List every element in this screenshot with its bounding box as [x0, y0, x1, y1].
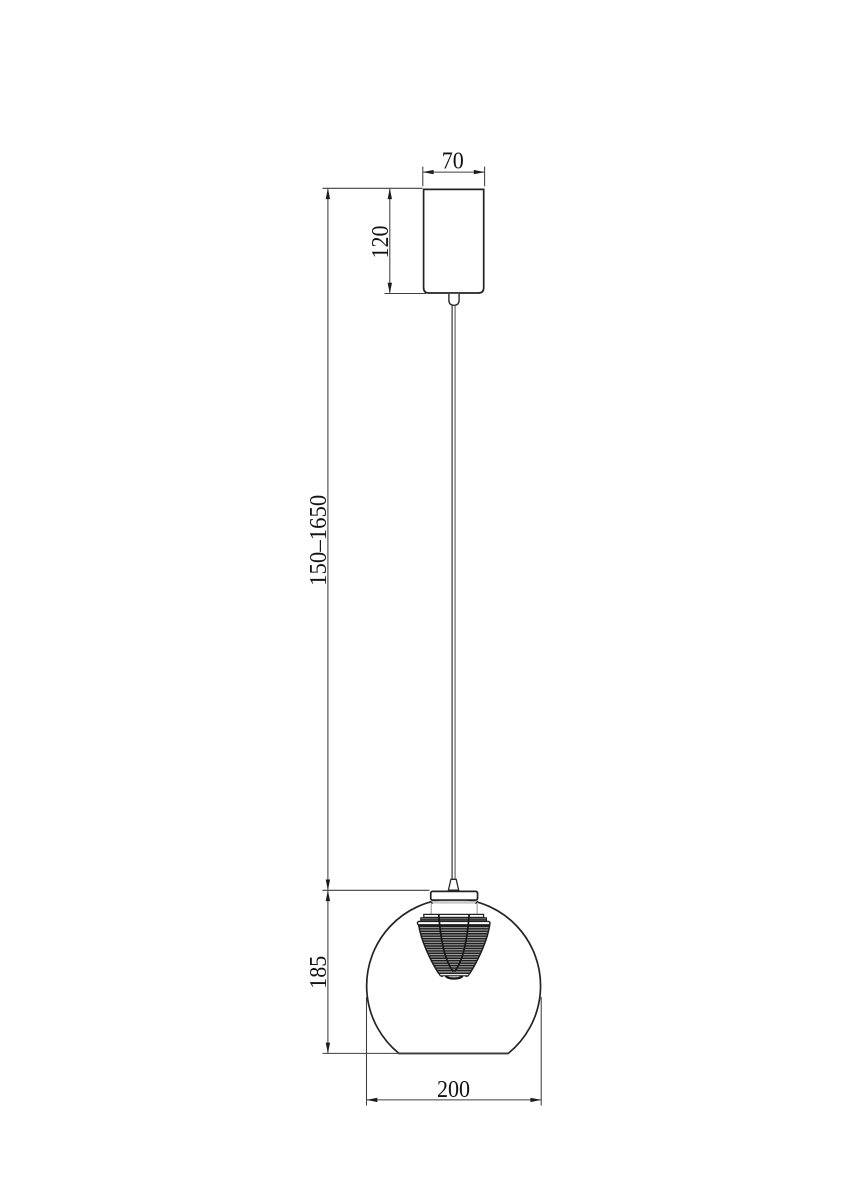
svg-text:200: 200 — [437, 1076, 470, 1103]
svg-text:120: 120 — [367, 225, 394, 258]
svg-text:70: 70 — [442, 148, 464, 175]
svg-text:150–1650: 150–1650 — [305, 495, 332, 586]
svg-text:185: 185 — [305, 956, 332, 989]
